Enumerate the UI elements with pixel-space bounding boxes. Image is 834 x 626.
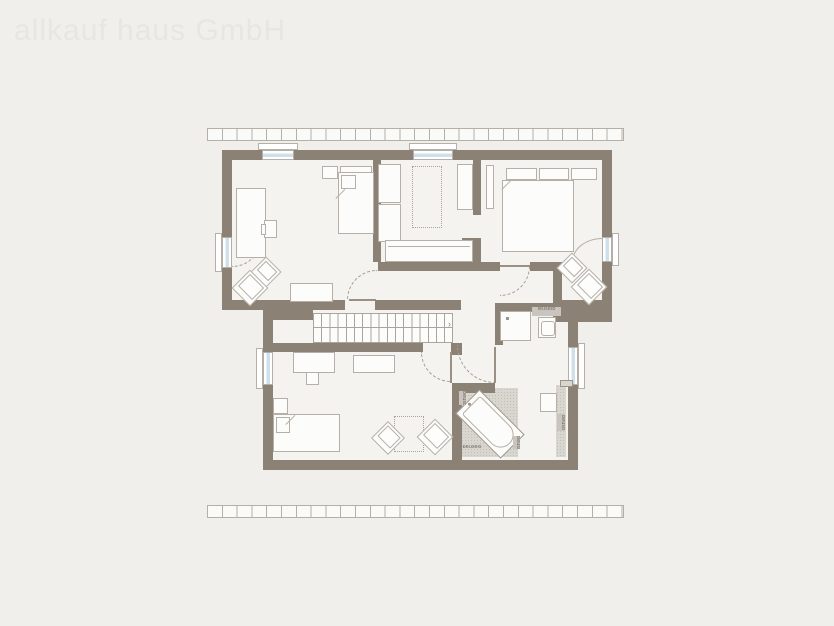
shower: [500, 311, 531, 341]
stair-rail: [314, 327, 452, 328]
bed-pillow: [539, 168, 569, 180]
wall: [602, 150, 612, 237]
washing-machine: [540, 393, 557, 412]
washbasin-bowl: [541, 321, 555, 336]
wall: [375, 300, 461, 310]
window-sill: [215, 233, 222, 272]
wall: [263, 343, 423, 352]
side-table: [353, 355, 395, 373]
stair-direction-arrow: ›: [448, 320, 451, 329]
window: [413, 150, 453, 160]
door-leaf: [500, 265, 530, 267]
window-sill: [578, 343, 585, 389]
wall: [553, 300, 612, 322]
wall: [294, 150, 413, 160]
fixture-label: beusb: [557, 414, 565, 431]
window: [262, 150, 294, 160]
wall: [473, 238, 481, 262]
desk-chair: [306, 372, 319, 385]
wardrobe: [457, 164, 473, 210]
wall: [222, 150, 232, 237]
side-table: [290, 283, 333, 302]
window: [602, 237, 612, 262]
window: [222, 237, 232, 268]
window: [263, 352, 273, 385]
wardrobe: [378, 164, 401, 203]
roof-edge-top: [207, 128, 624, 141]
desk-chair-back: [261, 224, 266, 235]
shower-drain: [506, 317, 509, 320]
planned-furniture-outline: [412, 166, 442, 228]
fixture-label: beusels: [462, 445, 482, 451]
window-sill: [409, 143, 457, 150]
wall: [568, 385, 578, 470]
headboard-cabinet: [571, 168, 597, 180]
radiator: [560, 380, 573, 387]
shelf: [322, 166, 338, 179]
fixture-label: beusb: [513, 436, 520, 449]
staircase: ›: [313, 313, 453, 343]
desk: [293, 352, 335, 373]
fixture-label: beusb: [459, 391, 466, 405]
sofa: [385, 240, 473, 262]
door-leaf: [494, 347, 496, 383]
wall: [378, 262, 500, 271]
radiator-label: leuseib: [532, 307, 561, 316]
bed-pillow: [341, 175, 356, 189]
desk: [236, 188, 266, 258]
watermark: allkauf haus GmbH: [14, 14, 286, 48]
roof-edge-bottom: [207, 505, 624, 518]
wall: [263, 460, 578, 470]
wardrobe: [486, 165, 494, 209]
wall: [568, 322, 578, 347]
wardrobe: [378, 204, 401, 242]
nightstand: [273, 398, 288, 414]
window-sill: [256, 348, 263, 389]
window-sill: [258, 143, 298, 150]
bed-pillow: [506, 168, 537, 180]
door-leaf: [349, 299, 376, 301]
floor-plan: allkauf haus GmbH: [0, 0, 834, 626]
wall: [473, 160, 481, 215]
door-leaf: [450, 352, 452, 383]
window-sill: [612, 233, 619, 266]
wall: [263, 385, 273, 470]
wall: [453, 150, 612, 160]
